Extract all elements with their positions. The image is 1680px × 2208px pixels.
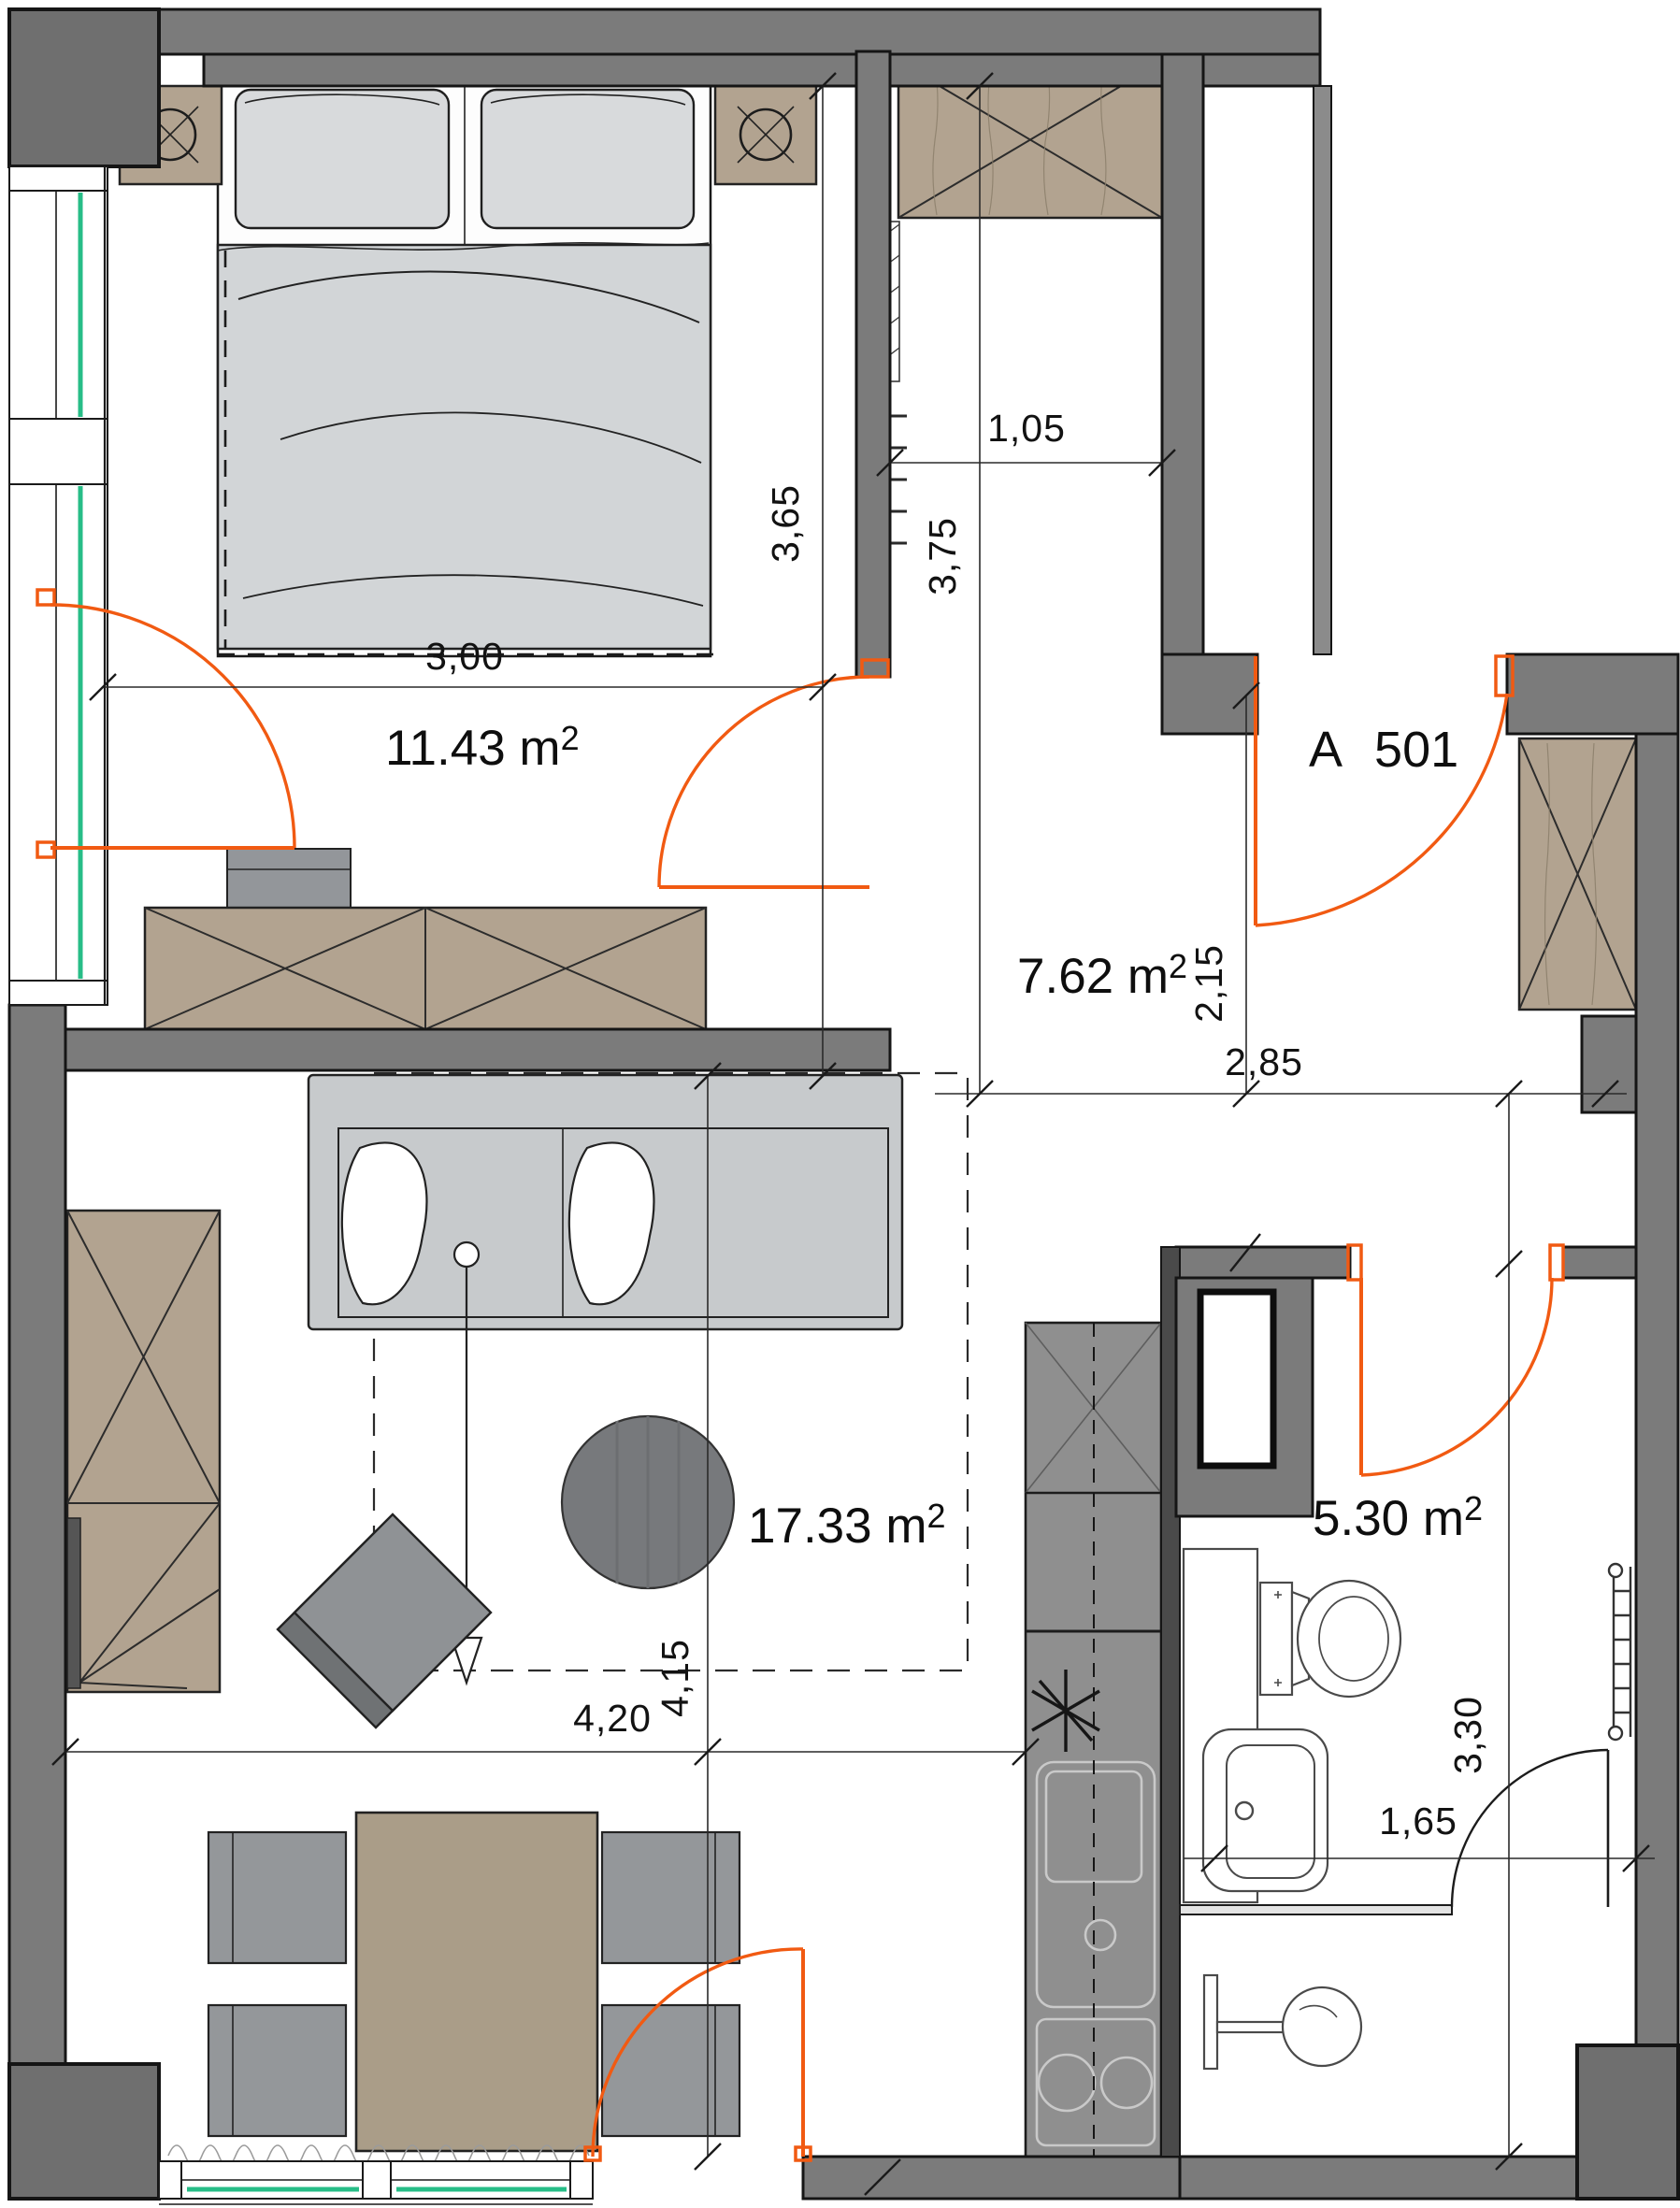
dim-bathroom-width: 1,65 (1379, 1799, 1457, 1842)
chair (602, 2005, 739, 2136)
entry-wall-stub (1162, 654, 1257, 734)
living-area-label: 17.33 m2 (748, 1497, 946, 1554)
apartment-number-label: A 501 (1309, 722, 1458, 778)
dim-bathroom-depth: 3,30 (1446, 1696, 1489, 1774)
dim-bed-width: 3,00 (425, 635, 504, 678)
tv-panel (67, 1518, 80, 1688)
left-window (9, 166, 108, 1005)
top-wall-inner (204, 54, 1320, 86)
nightstand-right (715, 86, 816, 184)
shower-head-icon (1204, 1975, 1361, 2069)
dim-hall-width: 2,85 (1225, 1040, 1303, 1083)
blanket (218, 243, 714, 654)
right-wall (1636, 654, 1678, 2199)
dim-living-depth: 4,15 (653, 1639, 696, 1717)
floor-plan-drawing: 3,00 3,65 3,75 1,05 2,15 2,85 4,20 4,15 … (0, 0, 1680, 2208)
top-left-column (9, 9, 159, 166)
hall-right-wall (1162, 54, 1203, 654)
entry-wardrobe (1519, 738, 1636, 1010)
top-wall (19, 9, 1320, 54)
towel-radiator-icon (1609, 1564, 1630, 1740)
entry-door (1256, 656, 1513, 925)
sofa (309, 1075, 902, 1329)
dining-table (356, 1813, 597, 2151)
tv-console (227, 849, 351, 909)
bottom-right-column (1577, 2045, 1678, 2199)
dim-entry-depth: 2,15 (1187, 944, 1230, 1023)
chair (602, 1832, 739, 1963)
living-partition (65, 1029, 890, 1070)
corridor-wall (1314, 86, 1331, 654)
bottom-window (159, 2161, 593, 2204)
bathroom-wall-left (1176, 1247, 1350, 1278)
left-wall (9, 1005, 65, 2064)
washbasin (1203, 1729, 1328, 1891)
dim-hall-depth: 3,75 (921, 517, 964, 595)
bedroom-partition (856, 51, 890, 677)
wall-projection (1582, 1016, 1636, 1112)
dim-bedroom-depth: 3,65 (764, 484, 807, 563)
chair (208, 1832, 346, 1963)
bottom-wall (803, 2157, 1180, 2199)
bathroom-door (1348, 1245, 1563, 1475)
duct-shaft (1176, 1278, 1313, 1516)
bedroom-door (659, 660, 888, 887)
dim-living-width: 4,20 (573, 1697, 652, 1740)
hall-furniture (884, 62, 1636, 1010)
living-cabinet (67, 1211, 220, 1692)
hall-area-label: 7.62 m2 (1017, 947, 1187, 1004)
bottom-left-column (9, 2064, 159, 2199)
coat-hooks (890, 416, 907, 543)
bathroom-wall-right (1563, 1247, 1636, 1278)
living-furniture (67, 1073, 968, 2166)
toilet (1260, 1581, 1400, 1697)
floor-plan-page: 3,00 3,65 3,75 1,05 2,15 2,85 4,20 4,15 … (0, 0, 1680, 2208)
kitchen-counter (1026, 1323, 1161, 2157)
entry-wall-right (1507, 654, 1678, 734)
dining-set (208, 1813, 739, 2151)
dim-wardrobe-width: 1,05 (987, 407, 1066, 450)
double-bed (218, 84, 714, 656)
bedroom-dresser (145, 908, 706, 1029)
chair (208, 2005, 346, 2136)
bedroom-area-label: 11.43 m2 (385, 719, 580, 776)
pouf (278, 1514, 491, 1728)
pillow-right (481, 90, 694, 228)
pillow-left (236, 90, 449, 228)
bathroom-area-label: 5.30 m2 (1313, 1489, 1483, 1546)
